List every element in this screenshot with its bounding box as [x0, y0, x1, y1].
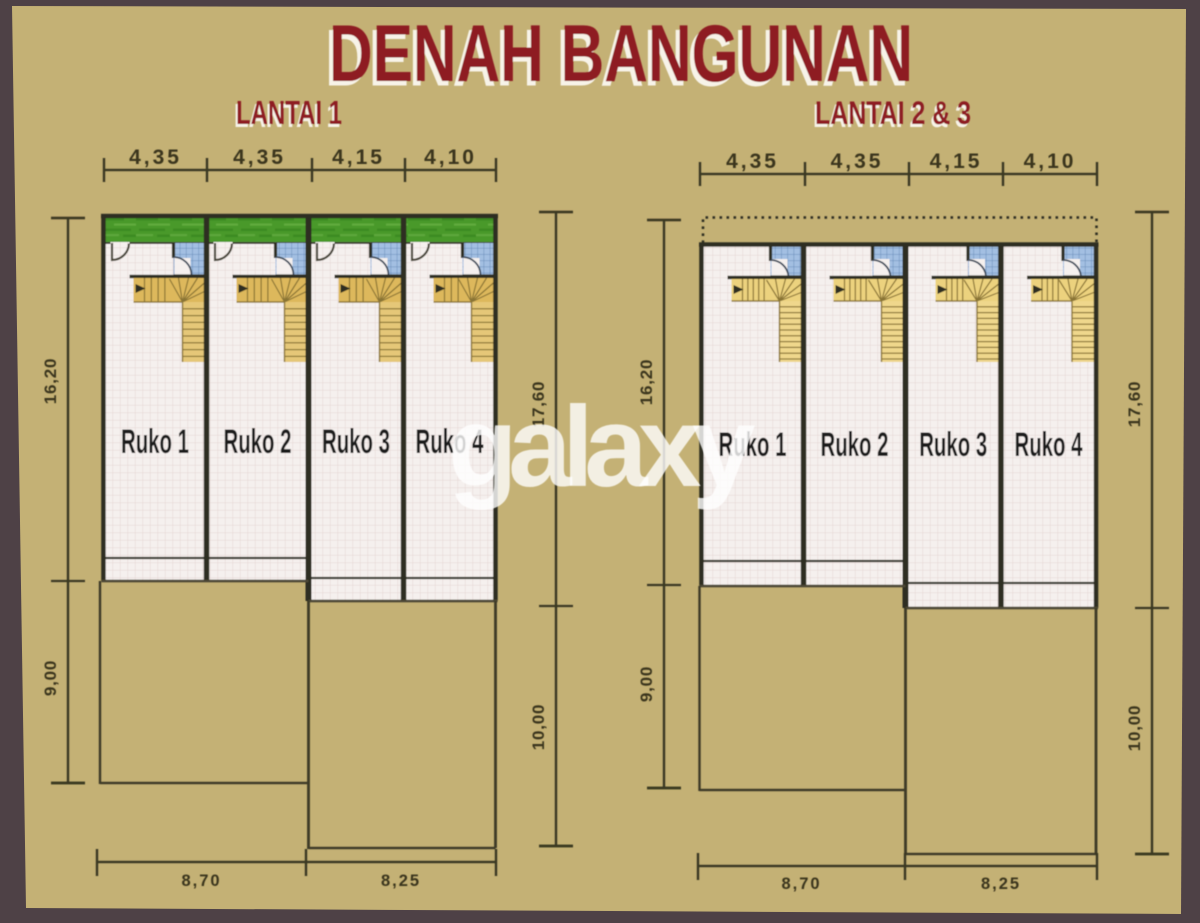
svg-text:4,15: 4,15	[930, 150, 983, 173]
svg-text:8,70: 8,70	[181, 872, 221, 890]
svg-text:Ruko 4: Ruko 4	[1015, 426, 1083, 464]
svg-text:Ruko 1: Ruko 1	[121, 423, 189, 461]
svg-text:9,00: 9,00	[637, 666, 656, 702]
svg-text:4,10: 4,10	[424, 146, 477, 169]
svg-text:4,35: 4,35	[233, 146, 286, 169]
svg-text:4,10: 4,10	[1024, 150, 1077, 173]
svg-text:Ruko 3: Ruko 3	[322, 423, 390, 461]
svg-text:8,70: 8,70	[781, 875, 821, 893]
svg-text:Ruko 2: Ruko 2	[224, 423, 292, 461]
svg-text:8,25: 8,25	[981, 875, 1021, 893]
svg-text:LANTAI 1: LANTAI 1	[236, 94, 342, 131]
svg-text:10,00: 10,00	[529, 704, 548, 751]
svg-text:9,00: 9,00	[41, 660, 60, 696]
svg-text:LANTAI 2 & 3: LANTAI 2 & 3	[815, 95, 971, 131]
svg-text:17,60: 17,60	[1125, 381, 1144, 428]
svg-text:Ruko 3: Ruko 3	[919, 426, 987, 464]
svg-text:DENAH BANGUNAN: DENAH BANGUNAN	[329, 9, 913, 99]
svg-text:4,35: 4,35	[831, 150, 884, 173]
svg-text:16,20: 16,20	[41, 358, 60, 405]
svg-text:4,35: 4,35	[726, 150, 779, 173]
svg-text:8,25: 8,25	[381, 872, 421, 890]
svg-text:4,15: 4,15	[332, 146, 385, 169]
svg-text:10,00: 10,00	[1125, 705, 1144, 752]
svg-text:Ruko 2: Ruko 2	[821, 426, 889, 464]
svg-text:4,35: 4,35	[129, 146, 182, 169]
svg-text:galaxy: galaxy	[448, 384, 755, 511]
